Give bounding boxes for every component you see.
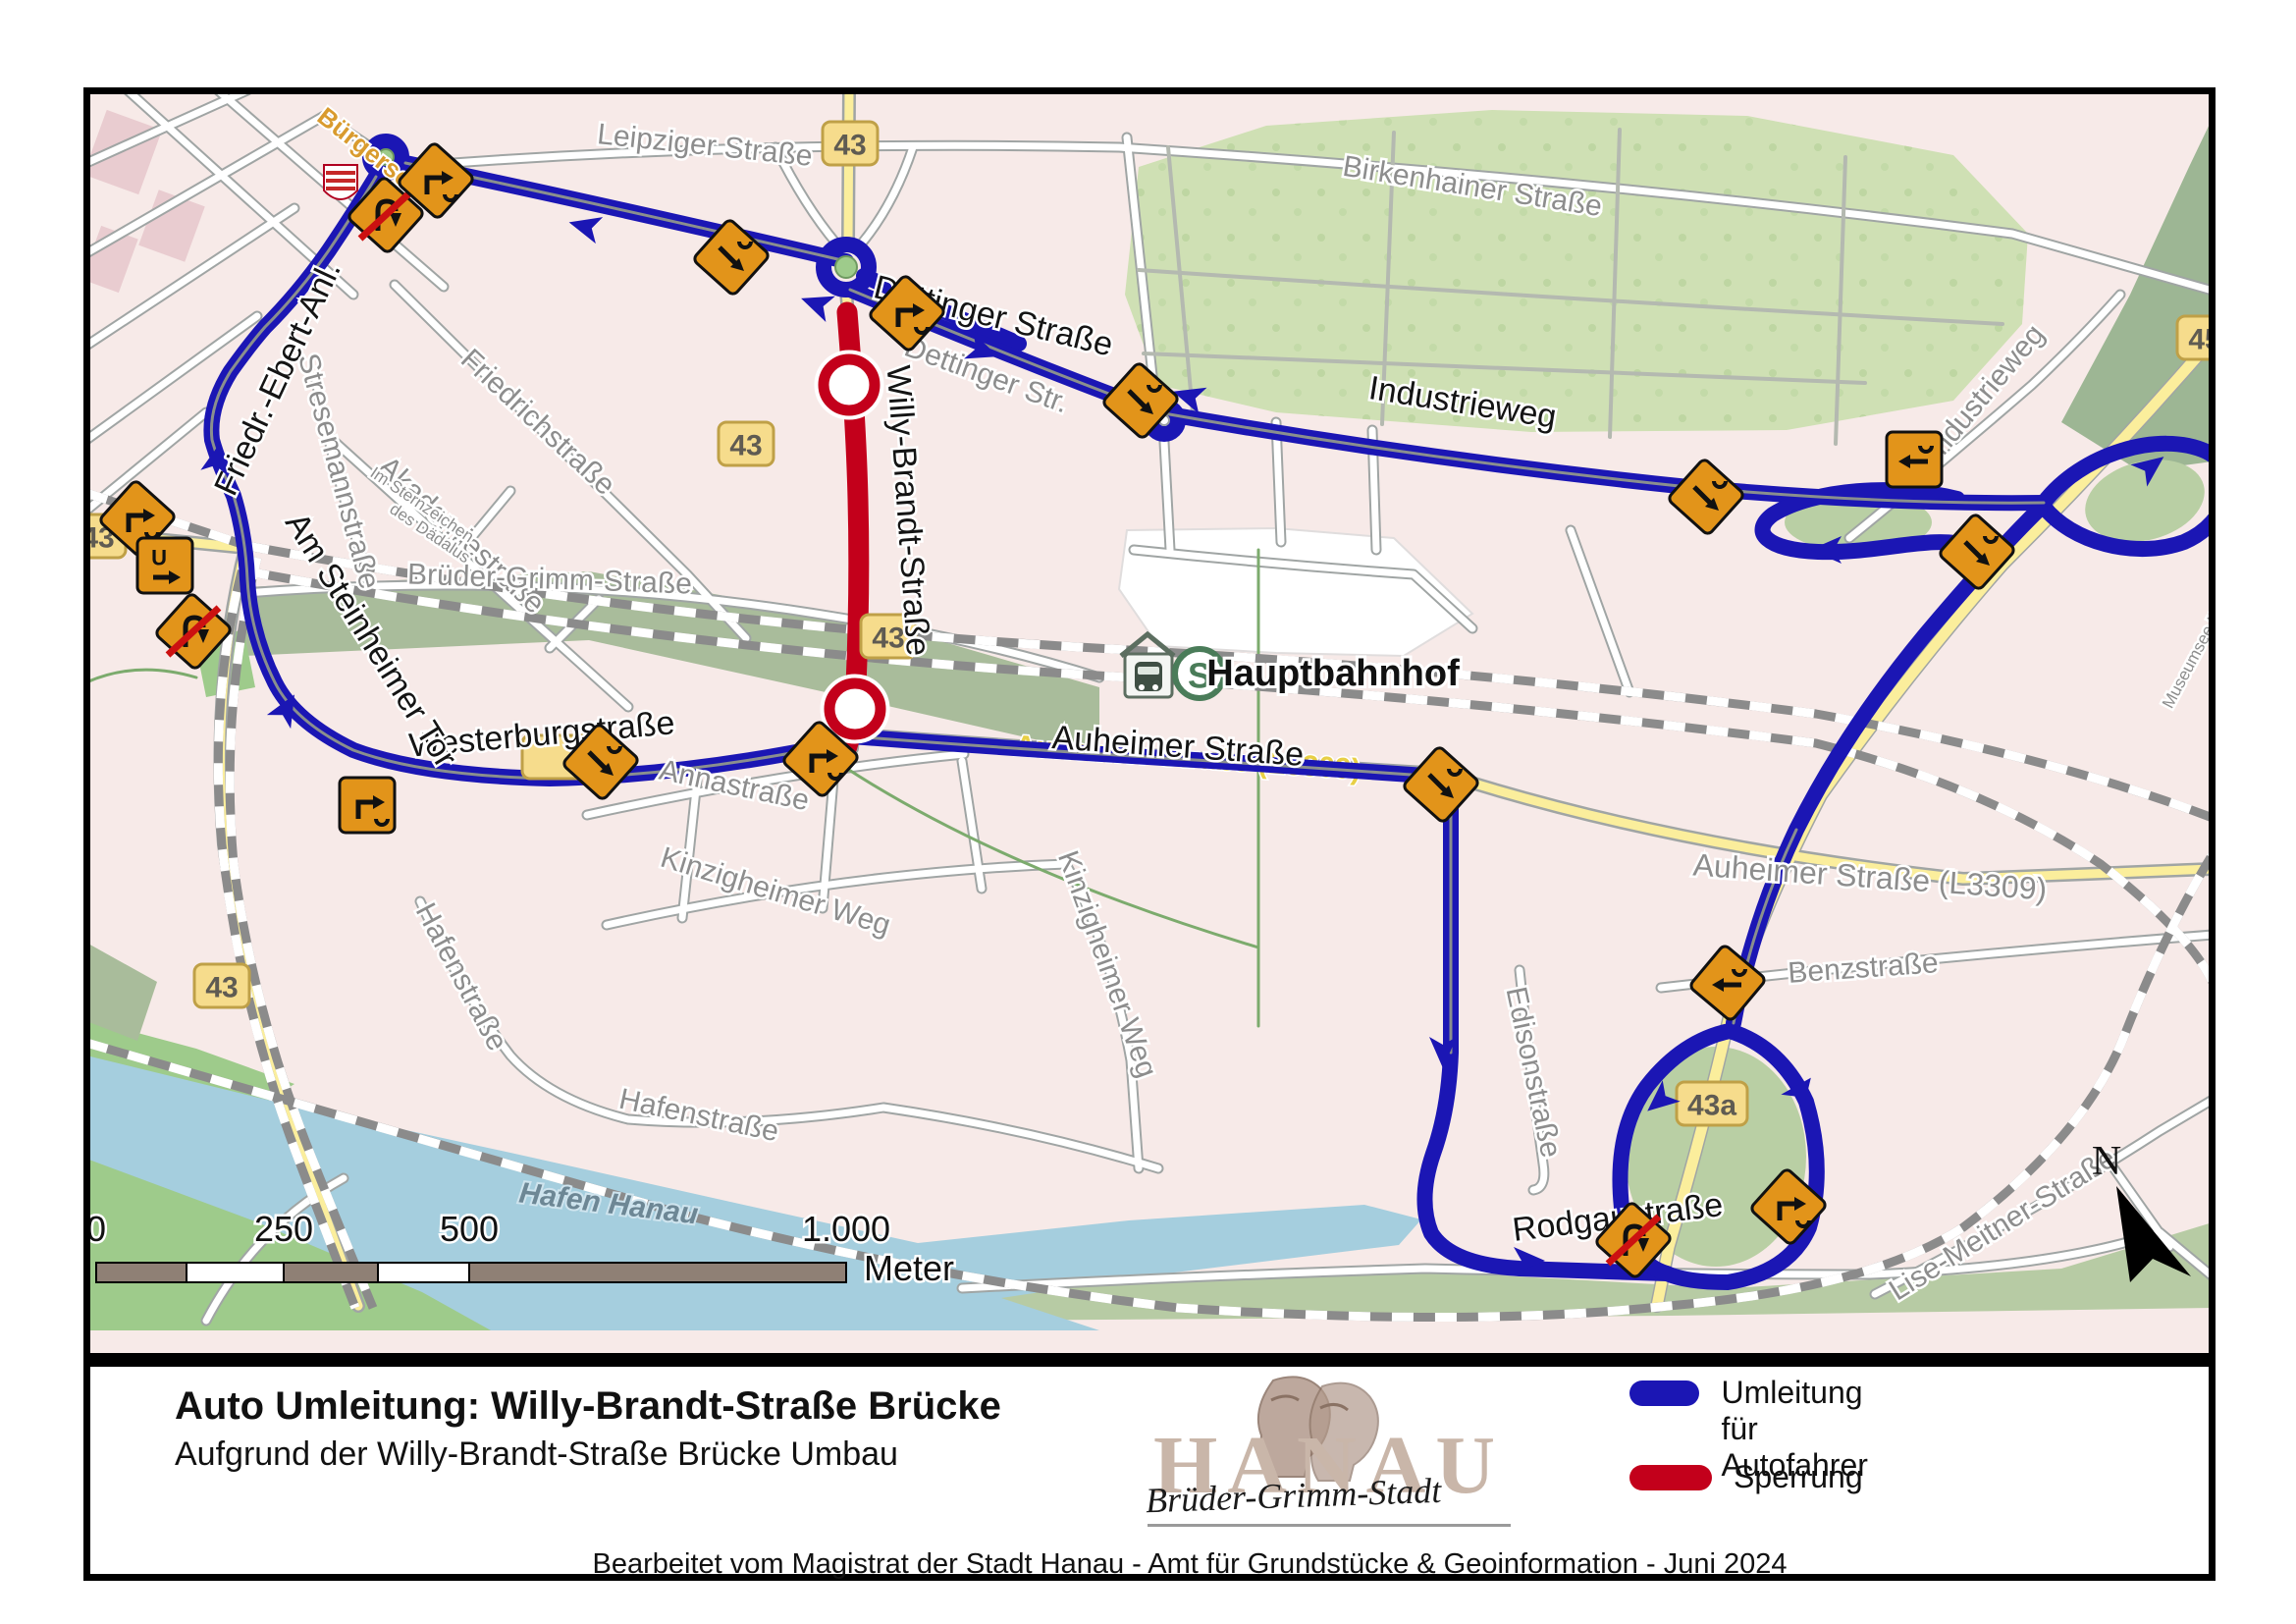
scale-tick-label: 0 — [86, 1209, 106, 1249]
detour-sign — [1887, 432, 1942, 487]
legend-item-closure: Sperrung — [1629, 1459, 1863, 1495]
coat-of-arms-icon — [324, 165, 357, 199]
legend-swatch-detour — [1629, 1380, 1699, 1406]
svg-text:U: U — [151, 546, 167, 570]
legend-label-line: Sperrung — [1734, 1459, 1863, 1495]
svg-text:43: 43 — [729, 430, 762, 462]
svg-text:43a: 43a — [1687, 1090, 1736, 1122]
scale-tick-label: 1.000 — [802, 1209, 890, 1249]
scale-bar-segment — [378, 1263, 469, 1282]
legend-swatch-closure — [1629, 1465, 1712, 1490]
svg-text:43: 43 — [833, 130, 866, 162]
svg-text:43: 43 — [205, 972, 238, 1004]
road-shield: 43 — [194, 964, 249, 1007]
scale-bar-segment — [96, 1263, 187, 1282]
scale-tick-label: 500 — [440, 1209, 499, 1249]
detour-sign — [340, 778, 395, 833]
svg-text:45: 45 — [2188, 324, 2220, 356]
legend-label-line: Umleitung für — [1721, 1375, 1880, 1447]
map-subtitle: Aufgrund der Willy-Brandt-Straße Brücke … — [175, 1435, 898, 1474]
closure-endpoint — [817, 352, 881, 417]
scale-bar-segment — [284, 1263, 378, 1282]
map-content: Auheimer Straße (L3309) — [71, 87, 2243, 1360]
scale-bar-segment — [187, 1263, 284, 1282]
road-shield: 43a — [1677, 1082, 1747, 1125]
hanau-logo: HANAU Brüder-Grimm-Stadt — [1067, 1369, 1528, 1550]
north-label: N — [2092, 1139, 2121, 1184]
scale-unit-label: Meter — [864, 1248, 954, 1288]
map-title: Auto Umleitung: Willy-Brandt-Straße Brüc… — [175, 1384, 1001, 1429]
map-footer: Bearbeitet vom Magistrat der Stadt Hanau… — [424, 1548, 1955, 1581]
detour-sign: U — [137, 538, 192, 593]
scale-bar-segment — [469, 1263, 846, 1282]
road-shield: 43 — [719, 422, 774, 465]
legend-label-closure: Sperrung — [1734, 1459, 1863, 1495]
title-panel: Auto Umleitung: Willy-Brandt-Straße Brüc… — [83, 1360, 2216, 1581]
road-shield: 43 — [823, 122, 878, 165]
logo-underline — [1148, 1524, 1511, 1527]
detour-map-page: Auheimer Straße (L3309) — [0, 0, 2296, 1624]
street-label: Hauptbahnhof — [1206, 653, 1460, 694]
scale-tick-label: 250 — [254, 1209, 313, 1249]
road-shield: 45 — [2177, 316, 2232, 359]
